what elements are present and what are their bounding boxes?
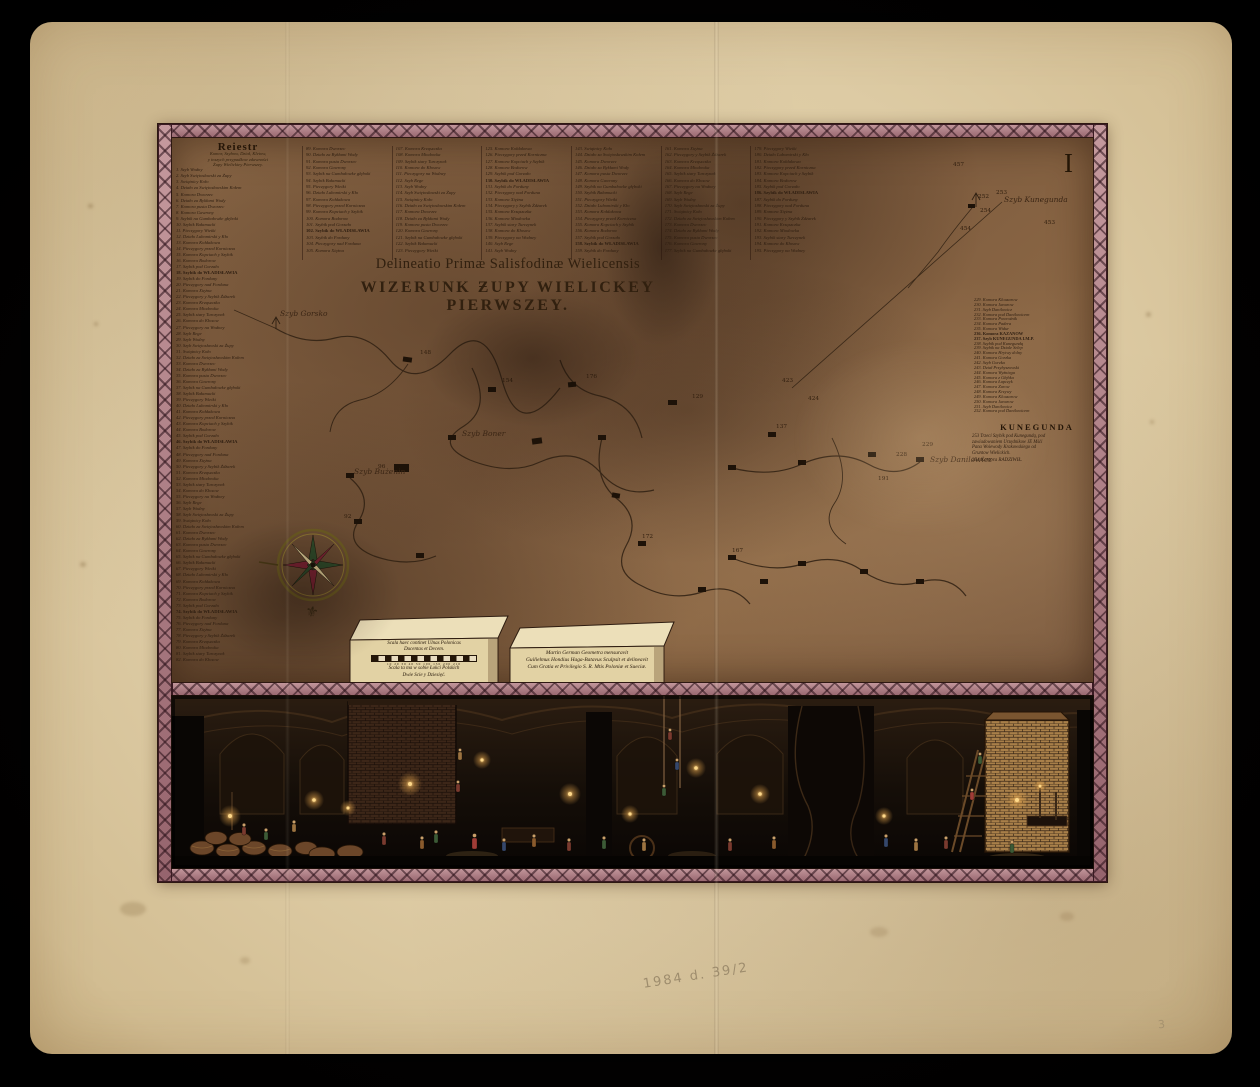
border-ribbon-top: [158, 124, 1107, 138]
legend-header: Reiestr: [176, 144, 300, 150]
legend-entry: 177. Szybik na Gumbałowke głęboki: [665, 248, 751, 254]
kunegunda-block: KUNEGUNDA 253 Trzeci Szybik pod Kunegund…: [972, 420, 1102, 463]
border-ribbon-bottom: [158, 868, 1107, 882]
salt-block-tower: [348, 700, 460, 824]
map-survey-number: 454: [960, 226, 971, 232]
border-ribbon-left: [158, 124, 172, 882]
paper-stain: [1150, 420, 1154, 424]
paper-stain: [120, 902, 146, 916]
map-survey-number: 172: [642, 534, 653, 540]
legend-entry: 252. Komora pod Danilowicem: [974, 409, 1100, 414]
kunegunda-entry-254: 254 Komora RADZIWIŁ.: [972, 458, 1102, 463]
map-survey-number: 423: [782, 378, 793, 384]
map-survey-number: 254: [980, 208, 991, 214]
legend-column: 161. Komora Xiężna162. Pieczygory y Szyb…: [661, 146, 751, 260]
border-ribbon-middle: [172, 682, 1093, 696]
legend-register-left: Reiestr Komor, Szybow, Dział, Kletow, y …: [176, 144, 300, 663]
kunegunda-paragraph: Gruntow Wielickich.: [972, 451, 1102, 457]
map-survey-number: 96: [378, 464, 386, 470]
legend-column: 179. Pieczygory Wietki180. Działo Lubomi…: [750, 146, 840, 260]
legend-entry: 141. Szyb Wodny: [485, 248, 571, 254]
title-polish: WIZERUNK ƵUPY WIELICKEY PIERWSZEY.: [310, 279, 706, 315]
legend-column: 89. Komora Dworzec90. Działo za Bykłami …: [302, 146, 392, 260]
map-survey-number: 252: [978, 194, 989, 200]
paper-stain: [80, 562, 86, 567]
scale-cartouche: Scala haec continet Ulnas Polonicas Duce…: [350, 641, 498, 679]
kunegunda-header: KUNEGUNDA: [972, 422, 1102, 432]
map-survey-number: 253: [996, 190, 1007, 196]
scale-bar: [371, 655, 477, 662]
fold-crease: [714, 22, 719, 1054]
legend-entry: 159. Szybik do Forduny: [575, 248, 661, 254]
title-latin: Delineatio Primæ Salisfodinæ Wielicensis: [310, 256, 706, 273]
mine-scene-art: [172, 696, 1093, 868]
fold-crease: [285, 22, 290, 1054]
paper-stain: [240, 957, 250, 964]
legend-register-right: 229. Komora Klouzarow230. Komora Janurow…: [974, 298, 1100, 414]
paper-stain: [1146, 312, 1151, 317]
legend-entry: 195. Pieczygory na Wodney: [754, 248, 840, 254]
pencil-number: 3: [1157, 1018, 1165, 1032]
paper-stain: [94, 322, 98, 326]
map-survey-number: 167: [732, 548, 743, 554]
map-survey-number: 92: [344, 514, 352, 520]
legend-entry: 82. Komora do Kłosow: [176, 657, 300, 663]
pencil-shelfmark: 1984 d. 39/2: [642, 947, 832, 992]
paper-stain: [1060, 912, 1074, 921]
imprint-line-1: Martin German Geometra mensuravit: [510, 650, 664, 657]
map-survey-number: 457: [953, 162, 964, 168]
legend-column: 125. Komora Kołdakowa126. Pieczygory prz…: [481, 146, 571, 260]
legend-entries: 1. Szyb Wodny2. Szyb Swiętosławski za Żu…: [176, 167, 300, 663]
scale-polish-2: Dwie Scie y Dziesięć.: [350, 673, 498, 679]
paper-stain: [88, 204, 93, 208]
map-survey-number: 453: [1044, 220, 1055, 226]
imprint-line-2: Guilielmus Hondius Haga-Batavus Sculpsit…: [510, 657, 664, 664]
map-survey-number: 137: [776, 424, 787, 430]
map-shaft-label: Szyb Kunegunda: [1004, 195, 1068, 204]
map-title-block: Delineatio Primæ Salisfodinæ Wielicensis…: [310, 256, 706, 315]
legend-column: 143. Swiątnicy Koło144. Działo za Swięto…: [571, 146, 661, 260]
mine-scene-frieze: [172, 696, 1093, 868]
paper-stain: [870, 927, 888, 937]
scale-latin-2: Ducentas et Decem.: [350, 647, 498, 653]
legend-column: 107. Komora Krząszczka108. Komora Miodow…: [392, 146, 482, 260]
map-shaft-label: Szyb Boner: [462, 429, 506, 438]
imprint-line-3: Cum Gratia et Privilegio S. R. Mtis Polo…: [510, 664, 664, 671]
border-ribbon-right: [1093, 124, 1107, 882]
legend-entry: 105. Komora Xiężna: [306, 248, 392, 254]
paper-sheet: ⚜: [30, 22, 1232, 1054]
map-field: ⚜: [172, 138, 1093, 682]
engraved-plate: ⚜: [158, 124, 1107, 882]
digitized-map-photo: ⚜: [0, 0, 1260, 1087]
plate-number: I: [1064, 148, 1073, 179]
legend-entry: 123. Pieczygory Wietki: [396, 248, 482, 254]
map-survey-number: 129: [692, 394, 703, 400]
imprint-cartouche: Martin German Geometra mensuravit Guilie…: [510, 650, 664, 672]
legend-register-top: 89. Komora Dworzec90. Działo za Bykłami …: [302, 146, 840, 260]
